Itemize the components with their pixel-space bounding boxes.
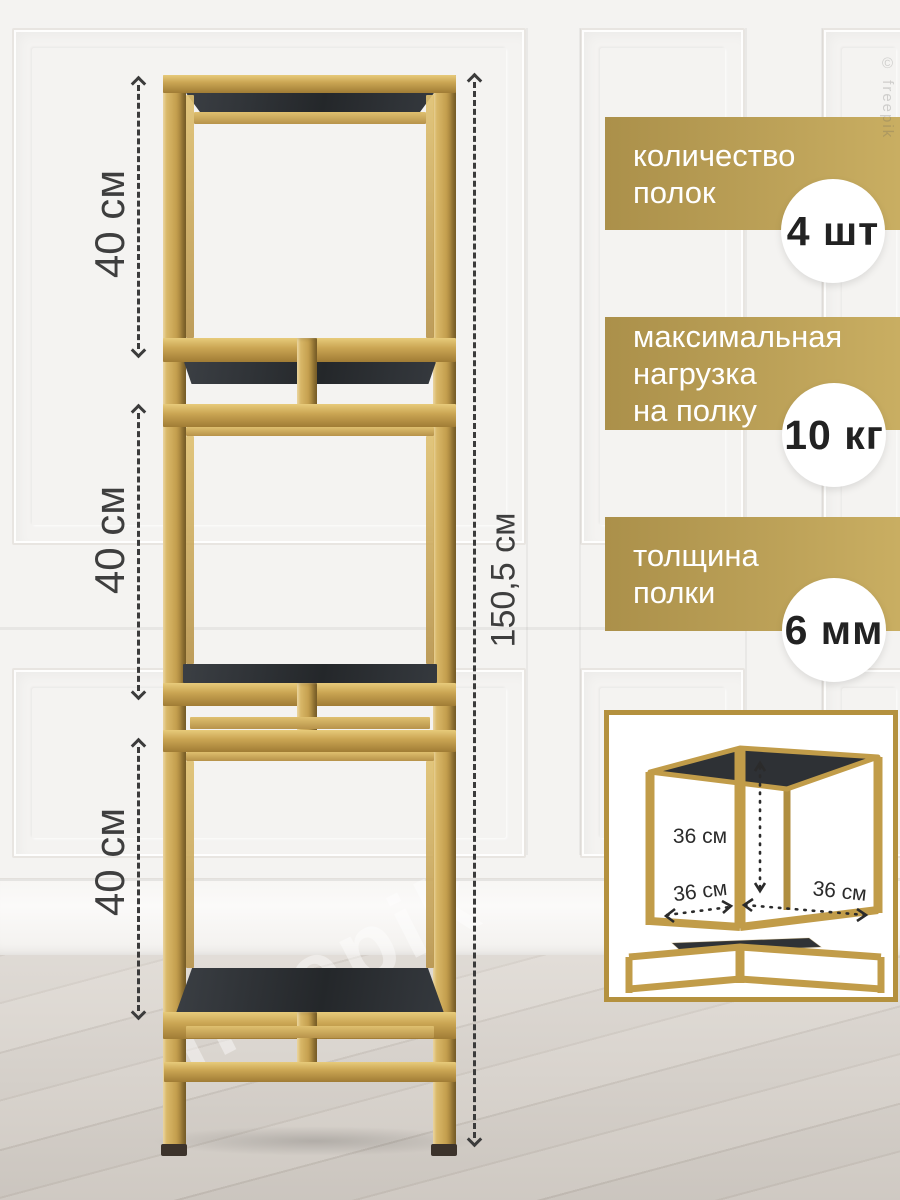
shelf-frame-bar <box>163 730 456 752</box>
shelf-board-3 <box>183 664 437 683</box>
shelf-frame-bar <box>163 404 456 427</box>
dim-label-section-2: 40 см <box>86 486 134 594</box>
shelf-back-rail <box>190 717 430 729</box>
wall-stile <box>526 28 528 855</box>
base-front-rail <box>164 1062 456 1082</box>
shelf-back-rail <box>186 752 434 761</box>
shelf-board-bottom <box>176 968 444 1013</box>
shelf-connector-post <box>297 338 317 408</box>
shelf-inner-post <box>186 436 194 664</box>
arrow-down-icon <box>467 1132 483 1148</box>
shelf-foot <box>161 1144 187 1156</box>
badge-value-max-load: 10 кг <box>782 383 886 487</box>
dim-label-total-height: 150,5 см <box>485 513 524 648</box>
inset-cube-drawing: 36 см 36 см 36 см <box>609 715 893 997</box>
shelf-post-right <box>433 75 456 1152</box>
arrow-down-icon <box>131 685 147 701</box>
inset-dim-width: 36 см <box>812 877 868 906</box>
shelf-inner-post <box>186 95 194 338</box>
badge-line: нагрузка <box>633 355 900 392</box>
shelf-inner-post <box>426 761 434 968</box>
inset-detail-box: 36 см 36 см 36 см <box>604 710 898 1002</box>
badge-line: количество <box>633 137 900 174</box>
badge-line: толщина <box>633 537 900 574</box>
shelf-back-rail <box>186 427 434 436</box>
shelf-post-left <box>163 75 186 1152</box>
badge-value-shelf-count: 4 шт <box>781 179 885 283</box>
wall-stile <box>579 28 581 855</box>
base-back-rail <box>186 1026 434 1038</box>
dim-label-section-1: 40 см <box>86 170 134 278</box>
shelf-back-rail <box>194 112 426 124</box>
dim-arrow-section-3 <box>133 740 144 1018</box>
dim-arrow-section-2 <box>133 406 144 698</box>
arrow-down-icon <box>131 1005 147 1021</box>
inset-dim-height: 36 см <box>673 825 727 848</box>
badge-value-shelf-thickness: 6 мм <box>782 578 886 682</box>
dim-arrow-total-height <box>469 75 480 1145</box>
badge-line: максимальная <box>633 318 900 355</box>
dim-arrow-section-1 <box>133 78 144 356</box>
shelf-foot <box>431 1144 457 1156</box>
shelf-inner-post <box>186 761 194 968</box>
watermark-corner: © freepik <box>879 55 896 139</box>
shelf-inner-post <box>426 95 434 338</box>
dim-label-section-3: 40 см <box>86 808 134 916</box>
product-infographic: freepik <box>0 0 900 1200</box>
shelf-top-bar <box>163 75 456 93</box>
wall-panel <box>580 28 745 545</box>
arrow-down-icon <box>131 343 147 359</box>
inset-dim-depth: 36 см <box>672 877 729 906</box>
shelf-inner-post <box>426 436 434 664</box>
